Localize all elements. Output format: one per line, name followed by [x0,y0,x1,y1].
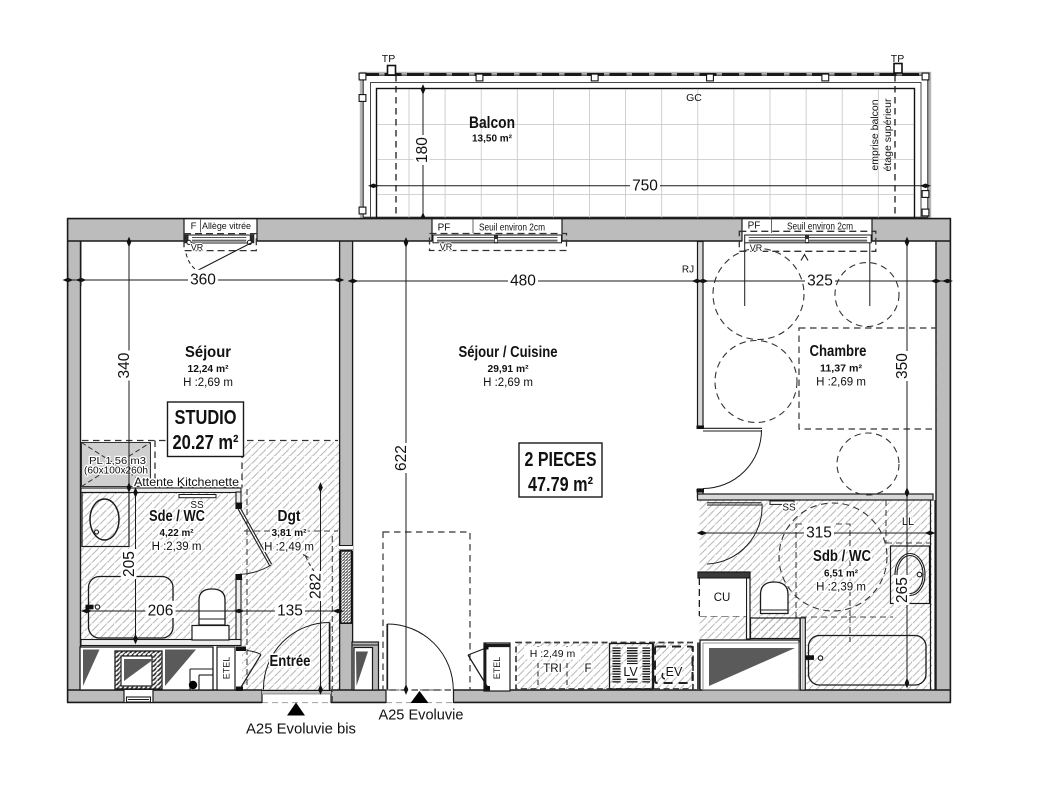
svg-text:Seuil environ 2cm: Seuil environ 2cm [479,223,545,234]
svg-text:ETEL: ETEL [222,657,232,680]
svg-text:12,24 m²: 12,24 m² [188,363,229,375]
svg-text:STUDIO: STUDIO [175,406,237,429]
svg-text:Séjour: Séjour [185,344,231,361]
svg-text:H :2,39 m: H :2,39 m [152,541,202,553]
svg-text:Attente Kitchenette: Attente Kitchenette [134,475,239,489]
svg-text:H :2,69 m: H :2,69 m [483,377,533,389]
svg-text:Sdb / WC: Sdb / WC [813,548,871,565]
svg-text:GC: GC [686,92,702,104]
svg-text:340: 340 [116,352,133,378]
svg-text:750: 750 [632,178,658,195]
svg-text:A25 Evoluvie bis: A25 Evoluvie bis [246,721,356,738]
svg-text:CU: CU [714,592,731,604]
svg-text:LV: LV [623,665,638,679]
svg-text:Séjour / Cuisine: Séjour / Cuisine [459,344,558,361]
svg-text:2 PIECES: 2 PIECES [525,448,597,471]
svg-text:emprise balcon: emprise balcon [869,99,881,170]
svg-text:Dgt: Dgt [278,508,301,525]
svg-text:4,22 m²: 4,22 m² [160,527,194,539]
svg-text:H :2,49 m: H :2,49 m [264,542,314,554]
svg-text:Balcon: Balcon [469,114,515,132]
svg-text:A25 Evoluvie: A25 Evoluvie [379,707,464,724]
svg-text:20.27 m²: 20.27 m² [173,431,239,454]
svg-text:H :2,49 m: H :2,49 m [530,648,576,660]
svg-text:ETEL: ETEL [492,657,502,680]
svg-text:H :2,69 m: H :2,69 m [816,377,866,389]
svg-text:EV: EV [666,665,683,679]
svg-text:TP: TP [382,53,395,65]
svg-text:11,37 m²: 11,37 m² [820,363,863,375]
svg-text:180: 180 [414,137,431,163]
svg-text:360: 360 [190,272,216,289]
svg-text:VR: VR [750,243,763,253]
svg-text:F: F [584,663,591,675]
svg-text:325: 325 [807,273,833,290]
svg-text:VR: VR [440,242,453,252]
svg-text:29,91 m²: 29,91 m² [488,363,529,375]
svg-text:SS: SS [782,503,796,514]
svg-text:206: 206 [148,603,174,620]
svg-text:Chambre: Chambre [810,343,867,360]
svg-text:H :2,39 m: H :2,39 m [816,582,866,594]
svg-text:VR: VR [191,243,204,253]
svg-text:315: 315 [806,525,832,542]
svg-text:Sde / WC: Sde / WC [149,508,205,525]
svg-text:6,51 m²: 6,51 m² [824,568,858,580]
svg-text:F: F [191,221,197,232]
svg-text:étage supérieur: étage supérieur [882,98,894,171]
svg-text:Allège vitrée: Allège vitrée [202,221,251,232]
svg-text:Entrée: Entrée [270,653,311,670]
svg-text:622: 622 [393,445,410,471]
svg-text:47.79 m²: 47.79 m² [528,473,593,496]
svg-text:RJ: RJ [682,265,694,276]
svg-text:LL: LL [902,516,914,528]
svg-text:PF: PF [438,223,451,234]
svg-text:480: 480 [510,273,536,290]
svg-text:13,50 m²: 13,50 m² [472,133,512,145]
svg-text:265: 265 [894,577,911,603]
svg-text:PF: PF [748,221,761,232]
svg-text:282: 282 [308,573,325,599]
svg-text:135: 135 [277,603,303,620]
svg-text:TRI: TRI [543,663,562,675]
svg-text:350: 350 [894,353,911,379]
svg-text:H :2,69 m: H :2,69 m [183,377,233,389]
svg-text:3,81 m²: 3,81 m² [272,527,307,539]
svg-text:205: 205 [121,551,138,577]
